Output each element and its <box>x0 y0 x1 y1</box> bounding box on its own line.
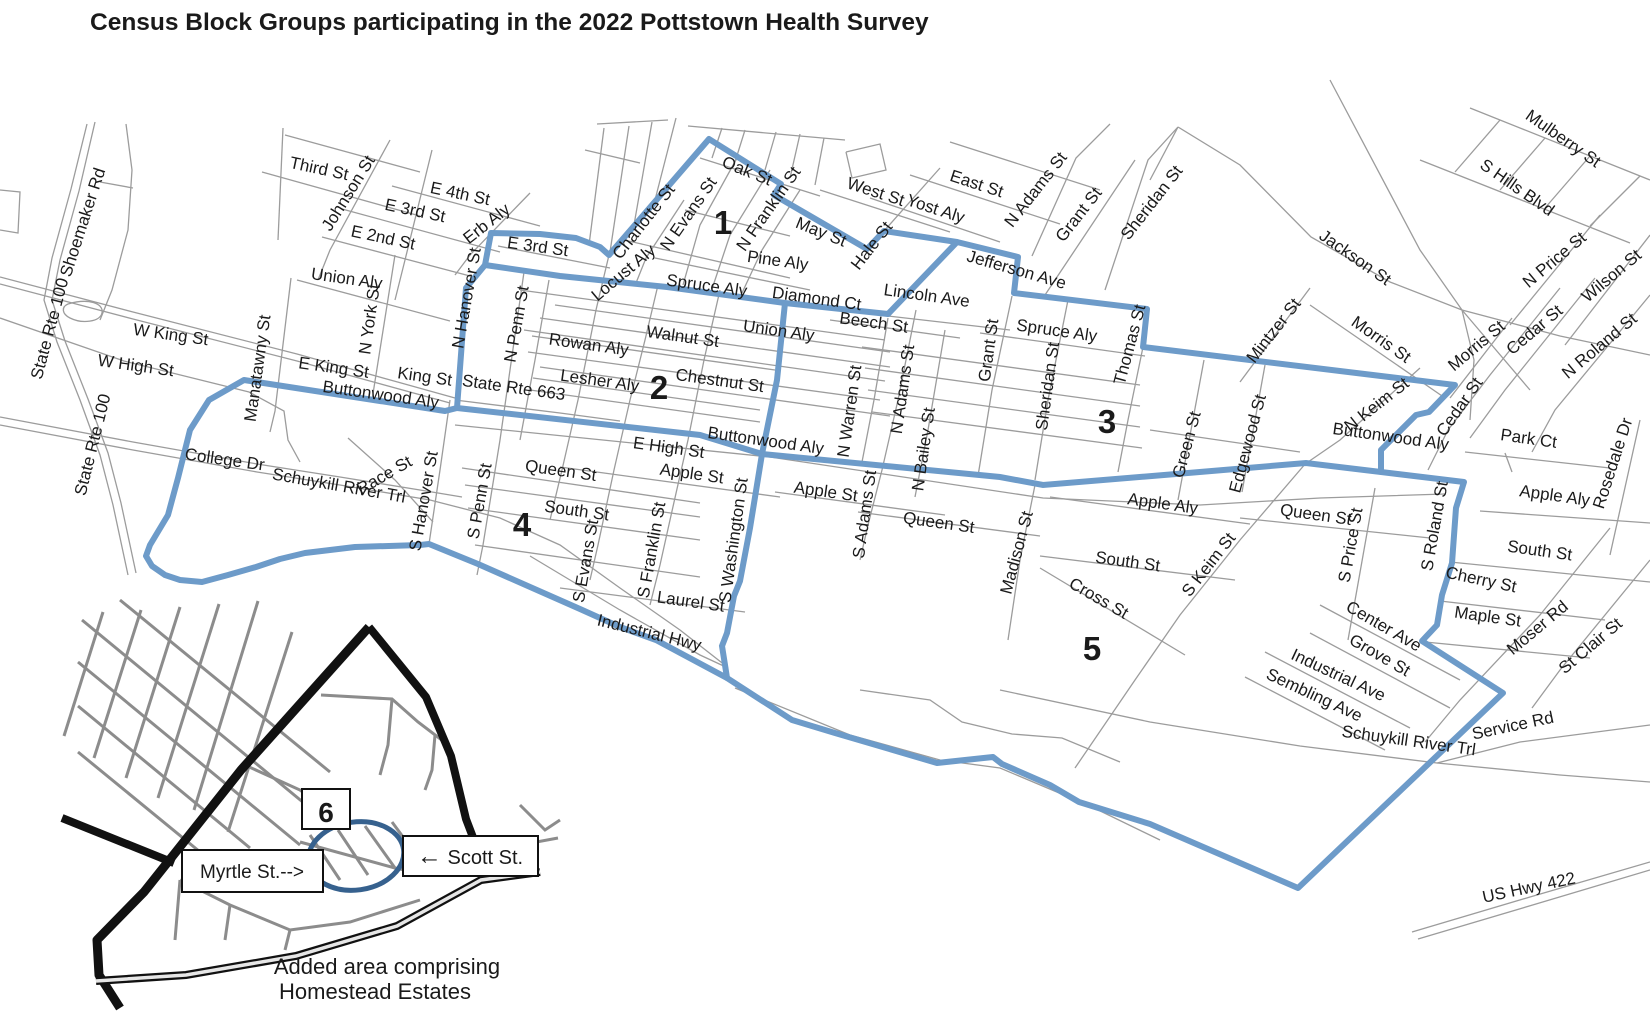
svg-text:3: 3 <box>1098 403 1116 440</box>
svg-text:4: 4 <box>513 506 532 543</box>
svg-text:5: 5 <box>1083 630 1101 667</box>
svg-text:Myrtle St.-->: Myrtle St.--> <box>200 862 304 883</box>
svg-text:← Scott St.: ← Scott St. <box>417 842 523 870</box>
svg-text:Added area comprising: Added area comprising <box>274 954 500 979</box>
svg-text:Homestead Estates: Homestead Estates <box>279 979 471 1004</box>
svg-text:2: 2 <box>650 369 668 406</box>
svg-text:1: 1 <box>714 204 732 241</box>
svg-text:6: 6 <box>318 797 334 828</box>
